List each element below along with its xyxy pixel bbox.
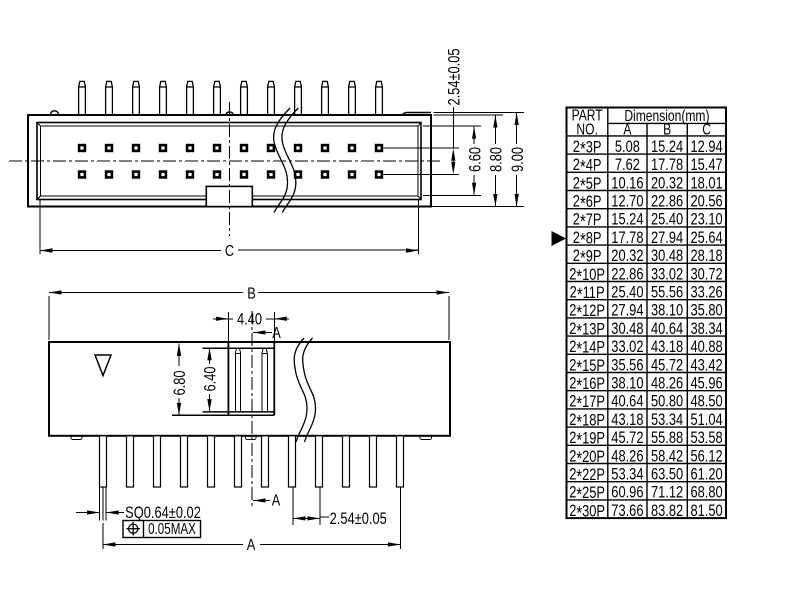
- svg-text:7.62: 7.62: [615, 157, 640, 175]
- svg-text:43.18: 43.18: [611, 412, 643, 430]
- svg-text:C: C: [702, 120, 711, 138]
- svg-text:33.02: 33.02: [611, 339, 643, 357]
- svg-text:6.60: 6.60: [467, 147, 485, 172]
- svg-text:23.10: 23.10: [691, 211, 723, 229]
- svg-text:C: C: [225, 243, 234, 261]
- svg-text:38.34: 38.34: [691, 321, 723, 339]
- svg-text:12.70: 12.70: [611, 193, 643, 211]
- svg-text:B: B: [663, 120, 671, 138]
- svg-text:A: A: [623, 120, 632, 138]
- svg-text:43.42: 43.42: [691, 357, 723, 375]
- svg-text:73.66: 73.66: [611, 503, 643, 521]
- svg-text:27.94: 27.94: [651, 230, 683, 248]
- svg-text:2.54±0.05: 2.54±0.05: [330, 511, 387, 529]
- svg-text:45.72: 45.72: [651, 357, 683, 375]
- svg-text:NO.: NO.: [576, 120, 597, 138]
- svg-text:55.88: 55.88: [651, 430, 683, 448]
- svg-text:48.26: 48.26: [611, 448, 643, 466]
- svg-text:20.56: 20.56: [691, 193, 723, 211]
- svg-text:2.54±0.05: 2.54±0.05: [446, 48, 464, 105]
- svg-text:A: A: [247, 537, 256, 555]
- svg-text:40.64: 40.64: [611, 393, 643, 411]
- svg-text:A: A: [272, 325, 281, 343]
- svg-text:27.94: 27.94: [611, 302, 643, 320]
- svg-text:53.34: 53.34: [651, 412, 683, 430]
- svg-text:15.24: 15.24: [611, 211, 643, 229]
- svg-text:35.56: 35.56: [611, 357, 643, 375]
- svg-text:45.96: 45.96: [691, 375, 723, 393]
- svg-text:5.08: 5.08: [615, 139, 640, 157]
- svg-text:40.64: 40.64: [651, 321, 683, 339]
- svg-text:55.56: 55.56: [651, 284, 683, 302]
- svg-text:33.26: 33.26: [691, 284, 723, 302]
- svg-text:9.00: 9.00: [509, 147, 527, 172]
- svg-text:30.72: 30.72: [691, 266, 723, 284]
- svg-text:81.50: 81.50: [691, 503, 723, 521]
- svg-text:A: A: [272, 492, 281, 510]
- svg-text:17.78: 17.78: [651, 157, 683, 175]
- svg-text:25.40: 25.40: [611, 284, 643, 302]
- svg-text:33.02: 33.02: [651, 266, 683, 284]
- svg-text:28.18: 28.18: [691, 248, 723, 266]
- svg-text:8.80: 8.80: [488, 147, 506, 172]
- svg-text:38.10: 38.10: [651, 302, 683, 320]
- svg-text:40.88: 40.88: [691, 339, 723, 357]
- svg-text:38.10: 38.10: [611, 375, 643, 393]
- svg-text:71.12: 71.12: [651, 484, 683, 502]
- svg-text:48.26: 48.26: [651, 375, 683, 393]
- svg-text:12.94: 12.94: [691, 139, 723, 157]
- svg-text:63.50: 63.50: [651, 466, 683, 484]
- svg-text:18.01: 18.01: [691, 175, 723, 193]
- svg-text:22.86: 22.86: [611, 266, 643, 284]
- svg-text:35.80: 35.80: [691, 302, 723, 320]
- svg-text:25.40: 25.40: [651, 211, 683, 229]
- svg-text:60.96: 60.96: [611, 484, 643, 502]
- svg-text:53.58: 53.58: [691, 430, 723, 448]
- svg-text:30.48: 30.48: [651, 248, 683, 266]
- svg-text:48.50: 48.50: [691, 393, 723, 411]
- svg-text:51.04: 51.04: [691, 412, 723, 430]
- svg-text:20.32: 20.32: [651, 175, 683, 193]
- svg-text:6.80: 6.80: [172, 370, 190, 395]
- svg-text:61.20: 61.20: [691, 466, 723, 484]
- svg-text:30.48: 30.48: [611, 321, 643, 339]
- svg-text:50.80: 50.80: [651, 393, 683, 411]
- svg-text:4.40: 4.40: [237, 311, 262, 329]
- svg-text:68.80: 68.80: [691, 484, 723, 502]
- svg-text:15.47: 15.47: [691, 157, 723, 175]
- svg-text:0.05MAX: 0.05MAX: [148, 520, 196, 537]
- svg-text:56.12: 56.12: [691, 448, 723, 466]
- svg-text:83.82: 83.82: [651, 503, 683, 521]
- svg-text:15.24: 15.24: [651, 139, 683, 157]
- svg-text:25.64: 25.64: [691, 230, 723, 248]
- svg-text:10.16: 10.16: [611, 175, 643, 193]
- svg-text:45.72: 45.72: [611, 430, 643, 448]
- svg-text:B: B: [247, 285, 256, 303]
- svg-text:22.86: 22.86: [651, 193, 683, 211]
- svg-text:20.32: 20.32: [611, 248, 643, 266]
- svg-text:53.34: 53.34: [611, 466, 643, 484]
- svg-text:17.78: 17.78: [611, 230, 643, 248]
- svg-text:43.18: 43.18: [651, 339, 683, 357]
- svg-text:58.42: 58.42: [651, 448, 683, 466]
- svg-text:6.40: 6.40: [202, 366, 220, 391]
